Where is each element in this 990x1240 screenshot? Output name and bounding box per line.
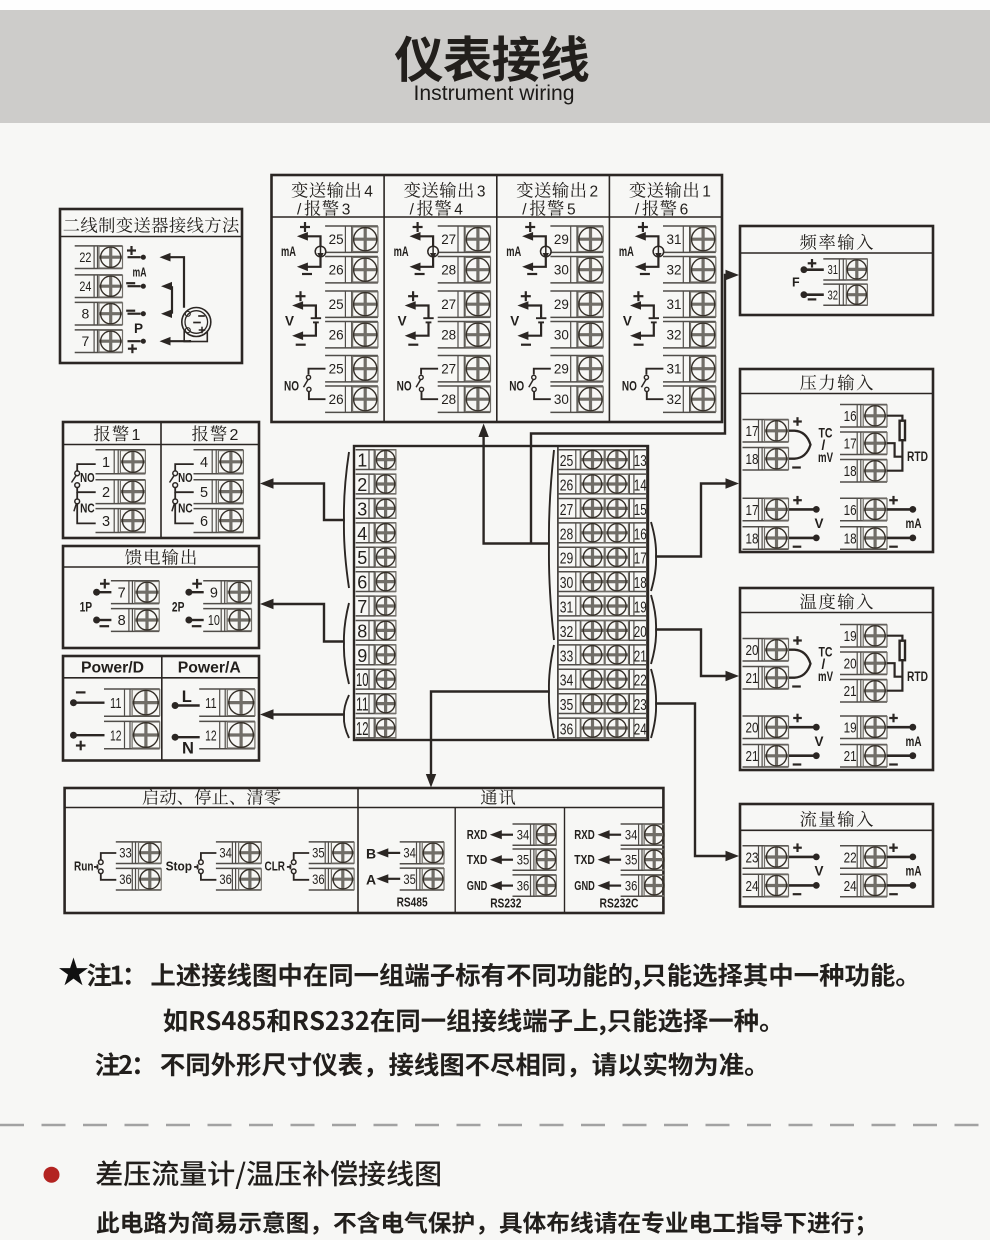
svg-text:NO: NO	[622, 379, 637, 394]
svg-text:8: 8	[82, 306, 90, 322]
svg-text:1P: 1P	[80, 599, 93, 614]
svg-text:24: 24	[844, 878, 857, 895]
svg-text:35: 35	[560, 697, 574, 714]
svg-text:28: 28	[560, 526, 574, 543]
svg-text:3: 3	[102, 514, 110, 530]
svg-text:NO: NO	[284, 379, 299, 394]
svg-text:Power/D: Power/D	[81, 660, 144, 677]
svg-text:/: /	[297, 202, 302, 219]
svg-text:1: 1	[132, 427, 141, 444]
svg-text:34: 34	[403, 846, 416, 861]
svg-text:35: 35	[517, 853, 530, 868]
svg-text:10: 10	[208, 613, 220, 629]
svg-text:V: V	[510, 314, 519, 329]
svg-text:4: 4	[357, 524, 367, 544]
svg-text:16: 16	[634, 526, 647, 543]
svg-text:6: 6	[680, 202, 689, 219]
svg-text:4: 4	[454, 202, 463, 219]
svg-text:RTD: RTD	[907, 449, 928, 464]
svg-text:Instrument wiring: Instrument wiring	[414, 81, 575, 105]
svg-text:3: 3	[477, 184, 486, 201]
svg-text:5: 5	[357, 548, 367, 568]
svg-text:26: 26	[560, 478, 574, 495]
svg-text:GND: GND	[467, 879, 488, 893]
svg-text:30: 30	[554, 327, 569, 343]
svg-text:V: V	[815, 734, 824, 749]
svg-text:mA: mA	[619, 244, 634, 259]
svg-text:32: 32	[667, 391, 682, 407]
svg-text:31: 31	[667, 361, 682, 377]
svg-text:Stop: Stop	[166, 859, 193, 874]
svg-text:7: 7	[118, 585, 126, 601]
svg-text:30: 30	[554, 262, 569, 278]
svg-text:TXD: TXD	[467, 853, 488, 867]
svg-text:29: 29	[560, 551, 574, 568]
svg-text:1: 1	[102, 455, 110, 471]
svg-text:32: 32	[560, 624, 574, 641]
svg-text:23: 23	[746, 849, 759, 866]
svg-text:6: 6	[357, 573, 367, 593]
svg-text:2: 2	[102, 485, 110, 501]
svg-text:6: 6	[200, 514, 208, 530]
svg-text:22: 22	[844, 849, 857, 866]
svg-text:30: 30	[554, 391, 569, 407]
svg-text:17: 17	[746, 423, 759, 440]
svg-text:20: 20	[844, 656, 857, 673]
svg-text:36: 36	[625, 878, 638, 893]
svg-text:21: 21	[746, 670, 759, 687]
svg-text:27: 27	[441, 231, 456, 247]
svg-text:36: 36	[560, 722, 574, 739]
svg-text:27: 27	[441, 296, 456, 312]
svg-text:CLR: CLR	[265, 859, 286, 874]
svg-text:V: V	[285, 314, 294, 329]
svg-text:16: 16	[844, 502, 857, 519]
svg-text:11: 11	[356, 695, 369, 715]
svg-text:32: 32	[667, 262, 682, 278]
svg-text:3: 3	[342, 202, 351, 219]
svg-text:24: 24	[79, 278, 91, 294]
svg-text:31: 31	[560, 600, 574, 617]
svg-text:18: 18	[844, 463, 857, 480]
svg-text:11: 11	[110, 696, 122, 712]
svg-text:NO: NO	[80, 471, 95, 485]
svg-text:2P: 2P	[172, 599, 185, 614]
svg-text:9: 9	[210, 585, 218, 601]
svg-text:34: 34	[517, 828, 530, 843]
svg-text:29: 29	[554, 296, 569, 312]
svg-text:14: 14	[634, 478, 647, 495]
svg-text:21: 21	[746, 748, 759, 765]
svg-text:31: 31	[667, 231, 682, 247]
svg-text:/: /	[410, 202, 415, 219]
svg-text:mV: mV	[818, 669, 833, 684]
svg-text:NO: NO	[397, 379, 412, 394]
svg-text:N: N	[182, 740, 194, 758]
svg-text:24: 24	[634, 722, 647, 739]
svg-text:23: 23	[634, 697, 647, 714]
svg-text:11: 11	[205, 696, 217, 712]
svg-text:NC: NC	[178, 502, 193, 516]
svg-text:20: 20	[634, 624, 647, 641]
svg-text:RS485: RS485	[397, 895, 428, 910]
svg-text:RTD: RTD	[907, 669, 928, 684]
svg-text:16: 16	[844, 408, 857, 425]
svg-text:NC: NC	[80, 502, 95, 516]
svg-text:A: A	[366, 872, 376, 888]
svg-text:18: 18	[746, 451, 759, 468]
svg-text:28: 28	[441, 327, 456, 343]
svg-text:13: 13	[634, 453, 647, 470]
svg-text:18: 18	[634, 575, 647, 592]
svg-text:RXD: RXD	[574, 828, 595, 842]
svg-text:34: 34	[625, 828, 638, 843]
svg-text:17: 17	[746, 502, 759, 519]
svg-text:33: 33	[119, 846, 132, 861]
svg-text:mA: mA	[506, 244, 521, 259]
svg-text:26: 26	[329, 262, 344, 278]
svg-text:7: 7	[82, 333, 90, 349]
svg-text:1: 1	[702, 184, 711, 201]
svg-text:12: 12	[205, 728, 217, 744]
svg-text:7: 7	[357, 597, 367, 617]
svg-text:5: 5	[567, 202, 576, 219]
svg-text:27: 27	[560, 502, 574, 519]
svg-text:P: P	[134, 321, 143, 336]
svg-text:2: 2	[357, 475, 367, 495]
svg-text:22: 22	[79, 249, 91, 265]
svg-text:36: 36	[312, 872, 325, 887]
svg-text:34: 34	[219, 846, 232, 861]
svg-text:26: 26	[329, 391, 344, 407]
svg-text:12: 12	[110, 728, 122, 744]
svg-text:20: 20	[746, 720, 759, 737]
svg-text:36: 36	[219, 872, 232, 887]
svg-text:RS232: RS232	[490, 896, 521, 911]
svg-text:18: 18	[746, 530, 759, 547]
svg-text:12: 12	[356, 719, 369, 739]
svg-text:28: 28	[441, 262, 456, 278]
svg-text:25: 25	[329, 361, 344, 377]
svg-text:32: 32	[667, 327, 682, 343]
svg-text:22: 22	[634, 673, 647, 690]
svg-text:25: 25	[560, 453, 574, 470]
svg-text:TXD: TXD	[574, 853, 595, 867]
svg-text:32: 32	[828, 287, 839, 302]
svg-text:NO: NO	[178, 471, 193, 485]
svg-text:31: 31	[828, 262, 839, 277]
svg-text:17: 17	[634, 551, 647, 568]
svg-text:3: 3	[357, 499, 367, 519]
svg-text:4: 4	[364, 184, 373, 201]
svg-text:8: 8	[357, 621, 367, 641]
svg-text:4: 4	[200, 455, 208, 471]
svg-text:2: 2	[230, 427, 239, 444]
svg-text:8: 8	[118, 613, 126, 629]
svg-text:RS232C: RS232C	[600, 896, 639, 911]
svg-text:18: 18	[844, 530, 857, 547]
svg-text:19: 19	[844, 720, 857, 737]
svg-text:V: V	[815, 864, 824, 879]
svg-text:V: V	[815, 516, 824, 531]
svg-text:35: 35	[625, 853, 638, 868]
svg-text:GND: GND	[574, 879, 595, 893]
svg-text:25: 25	[329, 231, 344, 247]
svg-text:29: 29	[554, 231, 569, 247]
svg-text:mA: mA	[133, 266, 147, 280]
svg-text:36: 36	[517, 878, 530, 893]
svg-text:21: 21	[844, 748, 857, 765]
svg-text:19: 19	[634, 600, 647, 617]
svg-text:Run: Run	[74, 859, 94, 874]
svg-text:24: 24	[746, 878, 759, 895]
svg-text:2: 2	[590, 184, 599, 201]
svg-text:mA: mA	[281, 244, 296, 259]
svg-text:V: V	[623, 314, 632, 329]
svg-text:/: /	[635, 202, 640, 219]
svg-text:34: 34	[560, 673, 574, 690]
svg-text:RXD: RXD	[467, 828, 488, 842]
svg-text:/: /	[522, 202, 527, 219]
svg-text:L: L	[182, 688, 192, 706]
svg-text:5: 5	[200, 485, 208, 501]
svg-text:9: 9	[357, 646, 367, 666]
svg-text:Power/A: Power/A	[178, 660, 241, 677]
svg-text:28: 28	[441, 391, 456, 407]
svg-text:20: 20	[746, 642, 759, 659]
svg-text:10: 10	[356, 670, 369, 690]
svg-text:mA: mA	[394, 244, 409, 259]
svg-text:27: 27	[441, 361, 456, 377]
svg-text:15: 15	[634, 502, 647, 519]
svg-text:V: V	[398, 314, 407, 329]
svg-text:36: 36	[119, 872, 132, 887]
svg-text:26: 26	[329, 327, 344, 343]
svg-text:30: 30	[560, 575, 574, 592]
svg-text:mV: mV	[818, 450, 833, 465]
svg-text:19: 19	[844, 628, 857, 645]
svg-text:NO: NO	[509, 379, 524, 394]
svg-text:F: F	[792, 276, 800, 290]
svg-text:33: 33	[560, 648, 574, 665]
svg-text:mA: mA	[906, 734, 922, 749]
svg-text:21: 21	[634, 648, 647, 665]
svg-text:mA: mA	[906, 864, 922, 879]
svg-text:35: 35	[312, 846, 325, 861]
svg-text:mA: mA	[906, 516, 922, 531]
svg-text:21: 21	[844, 683, 857, 700]
svg-text:1: 1	[357, 451, 367, 471]
svg-text:35: 35	[403, 872, 416, 887]
svg-text:31: 31	[667, 296, 682, 312]
svg-text:29: 29	[554, 361, 569, 377]
svg-text:B: B	[366, 846, 376, 862]
svg-text:17: 17	[844, 436, 857, 453]
svg-text:25: 25	[329, 296, 344, 312]
